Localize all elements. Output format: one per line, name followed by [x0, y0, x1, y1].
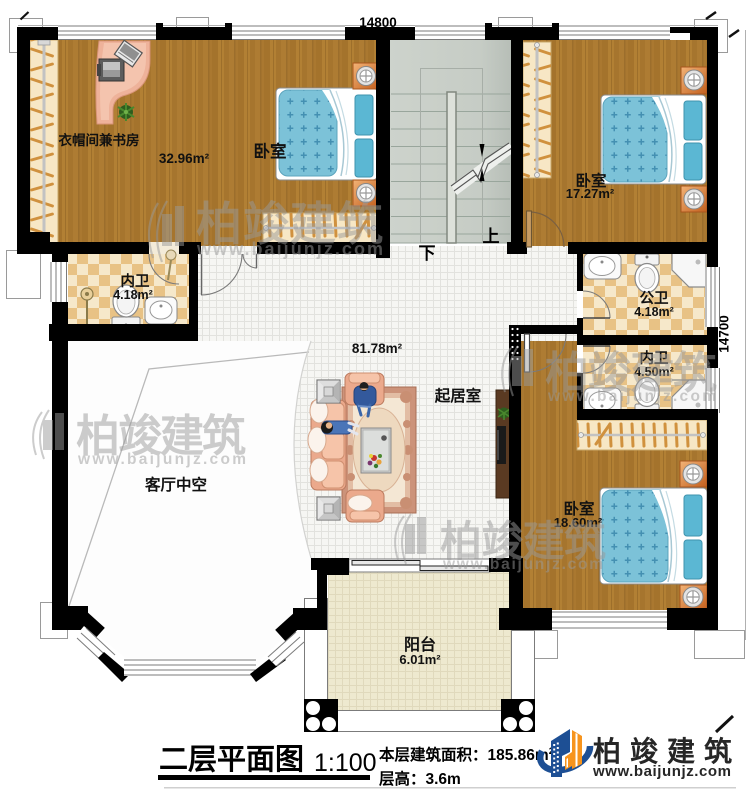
svg-text:32.96m²: 32.96m²	[159, 151, 210, 166]
svg-text:客厅中空: 客厅中空	[145, 475, 207, 494]
svg-text:4.18m²: 4.18m²	[634, 305, 674, 319]
svg-text:4.18m²: 4.18m²	[113, 288, 153, 302]
svg-text:卧室: 卧室	[254, 141, 287, 161]
svg-text:起居室: 起居室	[434, 386, 482, 405]
svg-text:www.baijunjz.com: www.baijunjz.com	[592, 763, 731, 780]
svg-text:17.27m²: 17.27m²	[566, 186, 615, 201]
svg-text:下: 下	[419, 244, 436, 263]
svg-text:81.78m²: 81.78m²	[352, 341, 403, 356]
svg-text:本层建筑面积：185.86m2: 本层建筑面积：185.86m2	[379, 745, 554, 764]
svg-text:二层平面图: 二层平面图	[159, 744, 304, 776]
svg-text:6.01m²: 6.01m²	[399, 652, 441, 667]
svg-text:上: 上	[483, 227, 500, 246]
svg-text:衣帽间兼书房: 衣帽间兼书房	[59, 132, 140, 148]
svg-text:层高：3.6m: 层高：3.6m	[379, 769, 461, 788]
svg-text:1:100: 1:100	[314, 749, 377, 777]
